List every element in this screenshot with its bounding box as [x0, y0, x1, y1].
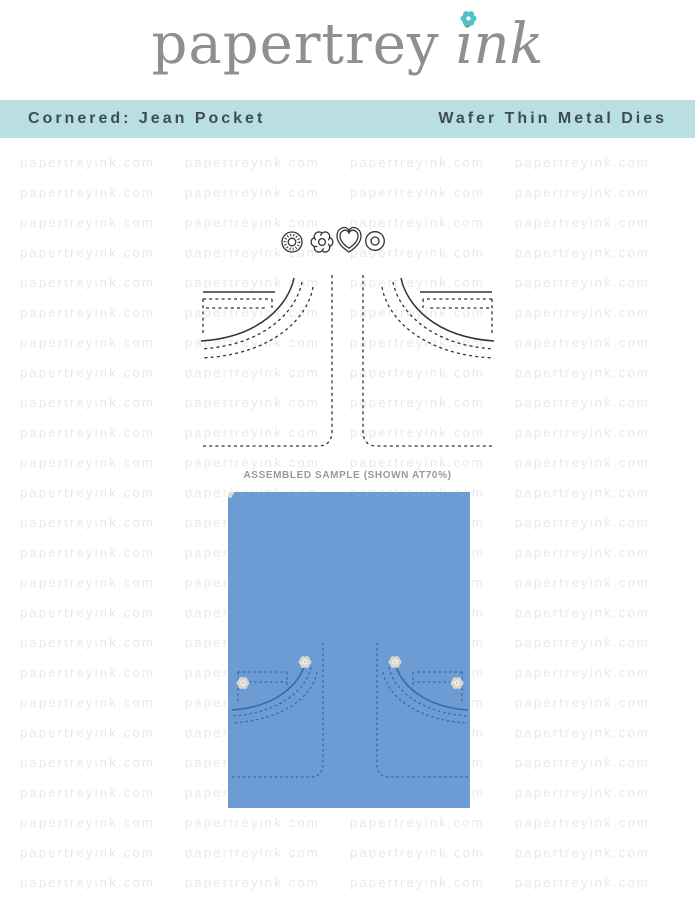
watermark-text: papertreyink.com	[20, 358, 185, 388]
watermark-text: papertreyink.com	[20, 658, 185, 688]
heart-die-outline	[337, 228, 361, 253]
product-name: Cornered: Jean Pocket	[28, 110, 265, 128]
jean-button-die-outline	[282, 232, 302, 252]
watermark-text: papertreyink.com	[20, 748, 185, 778]
watermark-text: papertreyink.com	[515, 598, 680, 628]
watermark-text: papertreyink.com	[20, 208, 185, 238]
watermark-text: papertreyink.com	[185, 808, 350, 838]
right-pocket-die	[363, 275, 494, 446]
brand-suffix-wrap: ink	[456, 12, 544, 77]
flower-die-outline	[311, 232, 333, 252]
watermark-text: papertreyink.com	[515, 808, 680, 838]
watermark-text: papertreyink.com	[515, 568, 680, 598]
watermark-text: papertreyink.com	[515, 688, 680, 718]
assembled-sample-art	[228, 492, 470, 808]
watermark-text: papertreyink.com	[20, 688, 185, 718]
brand-name: papertrey	[152, 12, 440, 77]
watermark-text: papertreyink.com	[515, 208, 680, 238]
watermark-text: papertreyink.com	[20, 238, 185, 268]
rivet-embellishment	[389, 656, 402, 668]
watermark-text: papertreyink.com	[515, 148, 680, 178]
watermark-row: papertreyink.compapertreyink.compapertre…	[0, 868, 695, 898]
watermark-text: papertreyink.com	[350, 808, 515, 838]
watermark-text: papertreyink.com	[20, 868, 185, 898]
watermark-text: papertreyink.com	[515, 628, 680, 658]
watermark-text: papertreyink.com	[20, 838, 185, 868]
watermark-text: papertreyink.com	[515, 838, 680, 868]
watermark-text: papertreyink.com	[20, 388, 185, 418]
rivet-die-outline	[366, 232, 385, 251]
die-outline-figure	[190, 225, 510, 465]
product-banner: Cornered: Jean Pocket Wafer Thin Metal D…	[0, 100, 695, 138]
watermark-row: papertreyink.compapertreyink.compapertre…	[0, 178, 695, 208]
watermark-text: papertreyink.com	[20, 298, 185, 328]
watermark-text: papertreyink.com	[20, 538, 185, 568]
watermark-text: papertreyink.com	[515, 658, 680, 688]
watermark-text: papertreyink.com	[20, 598, 185, 628]
watermark-text: papertreyink.com	[515, 538, 680, 568]
watermark-text: papertreyink.com	[350, 838, 515, 868]
watermark-text: papertreyink.com	[20, 808, 185, 838]
watermark-text: papertreyink.com	[515, 778, 680, 808]
product-image: papertrey ink Cornered: Jean Pocket Wafe…	[0, 0, 695, 900]
watermark-text: papertreyink.com	[350, 868, 515, 898]
watermark-text: papertreyink.com	[20, 778, 185, 808]
watermark-text: papertreyink.com	[20, 148, 185, 178]
watermark-text: papertreyink.com	[515, 388, 680, 418]
watermark-text: papertreyink.com	[515, 178, 680, 208]
rivet-embellishment	[228, 492, 234, 498]
watermark-text: papertreyink.com	[20, 478, 185, 508]
watermark-text: papertreyink.com	[20, 178, 185, 208]
watermark-text: papertreyink.com	[20, 568, 185, 598]
brand-logo: papertrey ink	[0, 12, 695, 77]
watermark-text: papertreyink.com	[185, 838, 350, 868]
watermark-text: papertreyink.com	[515, 418, 680, 448]
watermark-text: papertreyink.com	[515, 268, 680, 298]
watermark-text: papertreyink.com	[185, 148, 350, 178]
watermark-text: papertreyink.com	[20, 328, 185, 358]
watermark-text: papertreyink.com	[20, 508, 185, 538]
assembled-sample-card	[228, 492, 470, 808]
flower-icon	[460, 10, 477, 27]
watermark-text: papertreyink.com	[515, 478, 680, 508]
watermark-row: papertreyink.compapertreyink.compapertre…	[0, 838, 695, 868]
assembled-sample-label: ASSEMBLED SAMPLE (SHOWN AT70%)	[0, 470, 695, 481]
watermark-text: papertreyink.com	[515, 508, 680, 538]
watermark-text: papertreyink.com	[20, 418, 185, 448]
watermark-text: papertreyink.com	[515, 718, 680, 748]
watermark-text: papertreyink.com	[185, 868, 350, 898]
watermark-row: papertreyink.compapertreyink.compapertre…	[0, 808, 695, 838]
watermark-row: papertreyink.compapertreyink.compapertre…	[0, 148, 695, 178]
product-type: Wafer Thin Metal Dies	[438, 110, 667, 128]
watermark-text: papertreyink.com	[515, 868, 680, 898]
watermark-text: papertreyink.com	[515, 238, 680, 268]
watermark-text: papertreyink.com	[350, 178, 515, 208]
watermark-text: papertreyink.com	[20, 718, 185, 748]
watermark-text: papertreyink.com	[515, 328, 680, 358]
rivet-embellishment	[299, 656, 312, 668]
left-pocket-die	[201, 275, 332, 446]
watermark-text: papertreyink.com	[515, 358, 680, 388]
watermark-text: papertreyink.com	[515, 298, 680, 328]
watermark-text: papertreyink.com	[20, 268, 185, 298]
watermark-text: papertreyink.com	[350, 148, 515, 178]
watermark-text: papertreyink.com	[185, 178, 350, 208]
watermark-text: papertreyink.com	[515, 748, 680, 778]
watermark-text: papertreyink.com	[20, 628, 185, 658]
